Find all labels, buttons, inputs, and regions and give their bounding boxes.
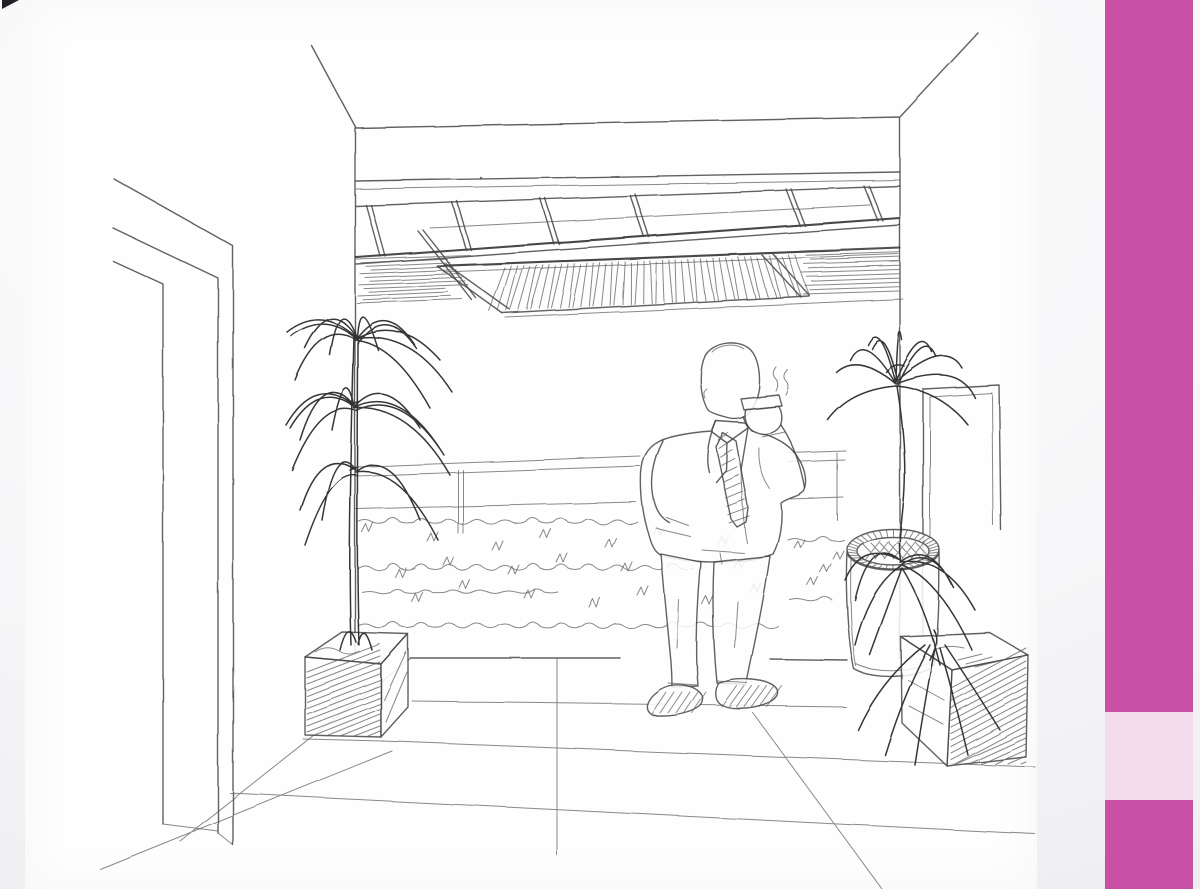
floor-baseline	[410, 658, 847, 660]
person-leg-left	[661, 554, 701, 687]
left-planter-box	[303, 632, 408, 741]
ceiling-fascia	[356, 172, 900, 181]
slide-canvas	[0, 0, 1200, 889]
planter-left-front	[305, 657, 381, 737]
person-torso-arm	[641, 421, 806, 562]
louver-bottom-line	[357, 299, 903, 317]
cigarette-smoke	[773, 367, 788, 395]
right-planter-box	[901, 633, 1028, 766]
floor-tile-lines	[100, 659, 1035, 889]
accent-bar	[1105, 0, 1193, 889]
man-in-suit	[641, 343, 806, 716]
person-hand	[745, 406, 782, 434]
left-plant-leaves	[286, 317, 452, 545]
pencil-dot	[480, 177, 482, 179]
louver-end-struts	[437, 253, 809, 313]
tiled-floor	[100, 658, 1035, 889]
ceiling-grid	[356, 186, 900, 300]
grid-top-rail	[356, 186, 900, 206]
ceiling-fascia-2	[356, 180, 900, 189]
door-frame	[113, 179, 233, 845]
door-frame-lines	[113, 179, 233, 845]
left-plant-trunk	[340, 335, 372, 650]
sketch-svg	[25, 0, 1037, 889]
accent-bar-highlight	[1105, 712, 1193, 800]
slide-corner-mark	[2, 0, 19, 9]
person-leg-right	[713, 556, 770, 685]
person-shoe-left	[647, 685, 703, 716]
louver-side-hatch-left	[356, 255, 470, 300]
left-potted-plant	[286, 317, 452, 650]
